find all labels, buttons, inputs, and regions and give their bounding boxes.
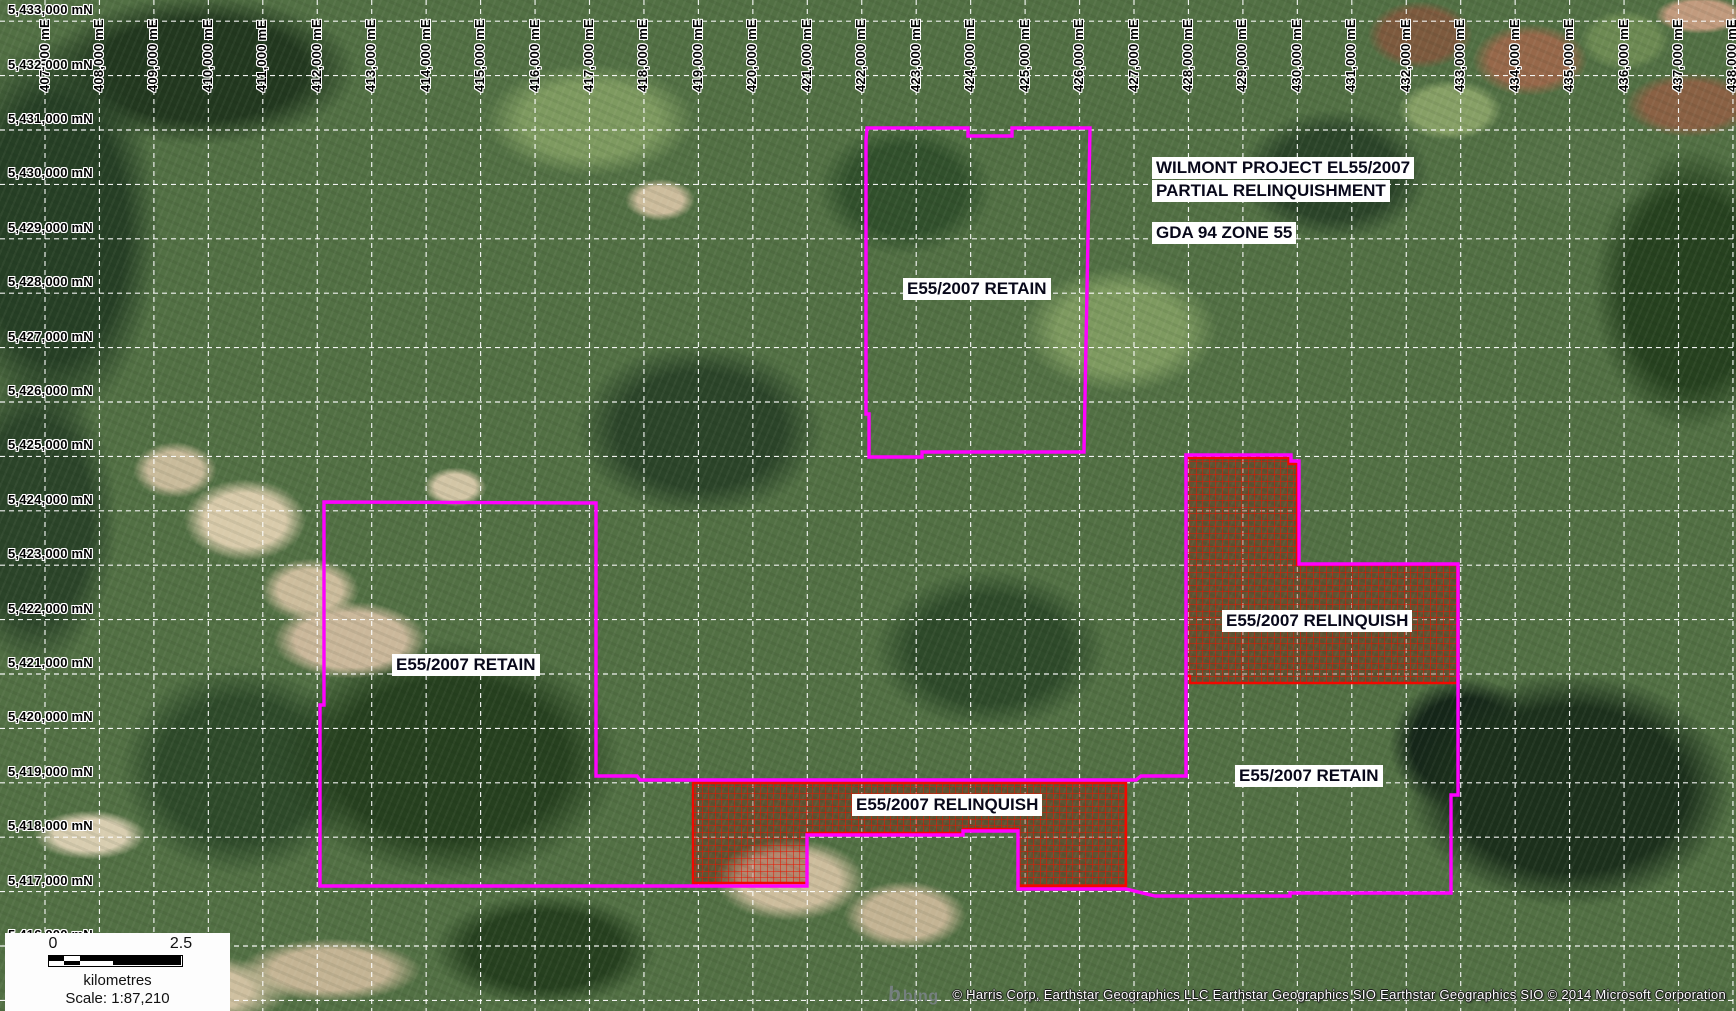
northing-grid-label: 5,422,000 mN xyxy=(8,601,93,616)
northing-grid-label: 5,419,000 mN xyxy=(8,764,93,779)
northing-grid-label: 5,424,000 mN xyxy=(8,492,93,507)
scalebar-segment xyxy=(80,961,113,966)
scale-text: Scale: 1:87,210 xyxy=(5,990,230,1007)
easting-grid-label: 431,000 mE xyxy=(1343,19,1358,92)
northing-grid-label: 5,426,000 mN xyxy=(8,383,93,398)
easting-grid-label: 415,000 mE xyxy=(472,19,487,92)
easting-grid-label: 410,000 mE xyxy=(200,19,215,92)
label-retain-north: E55/2007 RETAIN xyxy=(903,278,1051,300)
northing-grid-label: 5,423,000 mN xyxy=(8,546,93,561)
map-datum-label: GDA 94 ZONE 55 xyxy=(1152,222,1296,244)
easting-grid-label: 416,000 mE xyxy=(527,19,542,92)
easting-grid-label: 429,000 mE xyxy=(1234,19,1249,92)
relinquish-area-east xyxy=(1186,458,1458,683)
northing-grid-label: 5,427,000 mN xyxy=(8,329,93,344)
northing-grid-label: 5,421,000 mN xyxy=(8,655,93,670)
scalebar-units: kilometres xyxy=(5,972,230,989)
label-retain-west: E55/2007 RETAIN xyxy=(392,654,540,676)
northing-grid-label: 5,430,000 mN xyxy=(8,165,93,180)
northing-grid-label: 5,425,000 mN xyxy=(8,437,93,452)
coordinate-grid xyxy=(0,0,1736,1011)
scale-bar xyxy=(48,955,183,967)
easting-grid-label: 426,000 mE xyxy=(1071,19,1086,92)
easting-grid-label: 409,000 mE xyxy=(145,19,160,92)
map-canvas: 407,000 mE408,000 mE409,000 mE410,000 mE… xyxy=(0,0,1736,1011)
easting-grid-label: 433,000 mE xyxy=(1452,19,1467,92)
easting-grid-label: 408,000 mE xyxy=(91,19,106,92)
easting-grid-label: 407,000 mE xyxy=(37,19,52,92)
scale-bar-bottom-row xyxy=(49,961,182,966)
northing-grid-label: 5,431,000 mN xyxy=(8,111,93,126)
easting-grid-label: 413,000 mE xyxy=(363,19,378,92)
easting-grid-label: 432,000 mE xyxy=(1398,19,1413,92)
easting-grid-label: 411,000 mE xyxy=(254,20,269,92)
easting-grid-label: 414,000 mE xyxy=(418,19,433,92)
northing-grid-label: 5,418,000 mN xyxy=(8,818,93,833)
northing-grid-label: 5,417,000 mN xyxy=(8,873,93,888)
easting-grid-label: 422,000 mE xyxy=(853,19,868,92)
scalebar-min-label: 0 xyxy=(45,935,61,953)
map-overlay-graphics xyxy=(0,0,1736,1011)
scalebar-segment xyxy=(49,961,64,966)
northing-grid-label: 5,433,000 mN xyxy=(8,2,93,17)
northing-grid-label: 5,429,000 mN xyxy=(8,220,93,235)
easting-grid-label: 420,000 mE xyxy=(744,19,759,92)
northing-grid-label: 5,420,000 mN xyxy=(8,709,93,724)
easting-grid-label: 421,000 mE xyxy=(799,19,814,92)
easting-grid-label: 424,000 mE xyxy=(962,19,977,92)
easting-grid-label: 423,000 mE xyxy=(908,19,923,92)
easting-grid-label: 427,000 mE xyxy=(1126,19,1141,92)
label-relinquish-south: E55/2007 RELINQUISH xyxy=(852,794,1042,816)
scalebar-segment xyxy=(113,961,181,966)
map-title-line1: WILMONT PROJECT EL55/2007 xyxy=(1152,157,1414,179)
easting-grid-label: 419,000 mE xyxy=(690,19,705,92)
label-retain-east: E55/2007 RETAIN xyxy=(1235,765,1383,787)
easting-grid-label: 435,000 mE xyxy=(1561,19,1576,92)
easting-grid-label: 434,000 mE xyxy=(1507,19,1522,92)
easting-grid-label: 418,000 mE xyxy=(635,19,650,92)
scalebar-segment xyxy=(64,961,80,966)
easting-grid-label: 425,000 mE xyxy=(1017,19,1032,92)
map-attribution: © Harris Corp, Earthstar Geographics LLC… xyxy=(952,987,1726,1002)
northing-grid-label: 5,432,000 mN xyxy=(8,57,93,72)
easting-grid-label: 417,000 mE xyxy=(581,19,596,92)
bing-icon: b xyxy=(887,983,902,1007)
scale-box: 0 2.5 kilometres Scale: 1:87,210 xyxy=(5,933,230,1011)
label-relinquish-east: E55/2007 RELINQUISH xyxy=(1222,610,1412,632)
bing-logo: b bing xyxy=(888,983,939,1007)
northing-grid-label: 5,428,000 mN xyxy=(8,274,93,289)
easting-grid-label: 438,000 mE xyxy=(1724,19,1736,92)
easting-grid-label: 437,000 mE xyxy=(1670,19,1685,92)
easting-grid-label: 436,000 mE xyxy=(1616,19,1631,92)
bing-label: bing xyxy=(903,988,939,1006)
easting-grid-label: 412,000 mE xyxy=(309,19,324,92)
map-title-line2: PARTIAL RELINQUISHMENT xyxy=(1152,180,1390,202)
easting-grid-label: 428,000 mE xyxy=(1180,19,1195,92)
easting-grid-label: 430,000 mE xyxy=(1289,19,1304,92)
scalebar-max-label: 2.5 xyxy=(165,935,197,953)
